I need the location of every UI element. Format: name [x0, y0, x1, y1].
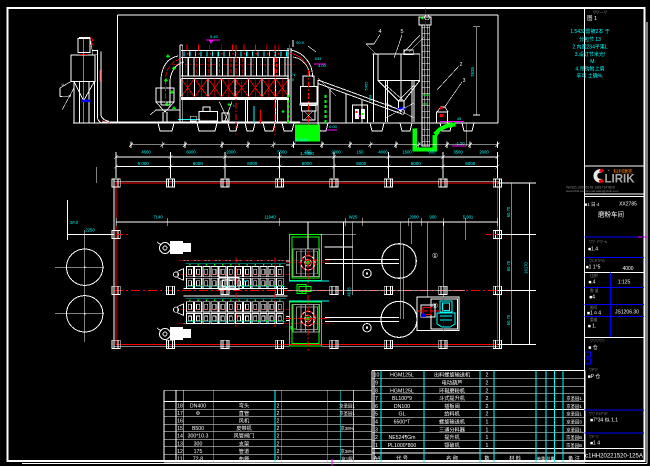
svg-text:BL100*9: BL100*9 — [392, 396, 412, 402]
svg-text:5: 5 — [375, 412, 378, 418]
svg-text:5.901: 5.901 — [463, 215, 474, 220]
svg-text:2: 2 — [277, 434, 280, 440]
svg-text:9: 9 — [375, 381, 378, 387]
svg-text:633: 633 — [315, 56, 322, 61]
svg-text:3500: 3500 — [453, 150, 463, 155]
svg-text:1:125: 1:125 — [618, 280, 631, 286]
svg-text:▽P▽: ▽P▽ — [589, 368, 598, 372]
svg-text:4: 4 — [378, 29, 381, 35]
svg-text:900: 900 — [430, 215, 438, 220]
svg-text:17: 17 — [177, 411, 183, 417]
svg-text:皮带机: 皮带机 — [236, 424, 252, 432]
svg-text:7635: 7635 — [470, 66, 475, 77]
svg-text:HGM125L: HGM125L — [390, 373, 414, 379]
svg-text:Φ: Φ — [196, 411, 200, 417]
svg-text:▽▽· P▽~b: ▽▽· P▽~b — [589, 240, 607, 244]
svg-text:2000: 2000 — [409, 215, 419, 220]
svg-text:♣: ♣ — [172, 66, 176, 72]
svg-text:京圣园B: 京圣园B — [566, 434, 582, 441]
svg-text:6000: 6000 — [465, 161, 476, 166]
svg-text:12: 12 — [177, 449, 183, 455]
svg-text:3: 3 — [463, 78, 466, 84]
svg-text:72-8: 72-8 — [193, 456, 203, 462]
svg-text:5: 5 — [400, 29, 403, 35]
svg-text:代 号: 代 号 — [396, 454, 408, 462]
svg-text:1500: 1500 — [402, 150, 412, 155]
svg-text:900: 900 — [429, 150, 437, 155]
svg-text:5.40: 5.40 — [210, 34, 219, 39]
svg-text:1: 1 — [486, 443, 489, 449]
svg-text:1.7400: 1.7400 — [296, 138, 309, 143]
svg-text:♣: ♣ — [170, 90, 174, 96]
svg-text:图 1: 图 1 — [587, 14, 597, 22]
svg-text:16: 16 — [177, 419, 183, 425]
svg-text:2: 2 — [277, 411, 280, 417]
svg-text:京38%: 京38% — [340, 425, 353, 432]
svg-text:608: 608 — [367, 94, 372, 101]
svg-text:■.4: ■.4 — [588, 280, 595, 286]
svg-text:螺旋输送机: 螺旋输送机 — [439, 418, 466, 426]
svg-text:科利瑞克: 科利瑞克 — [613, 168, 632, 175]
svg-text:5455: 5455 — [364, 81, 369, 91]
svg-text:10: 10 — [374, 373, 380, 379]
svg-text:京38%: 京38% — [340, 448, 353, 455]
svg-text:∨: ∨ — [292, 77, 295, 82]
svg-text:60.70: 60.70 — [506, 260, 511, 271]
svg-text:京圣园3: 京圣园3 — [566, 419, 582, 426]
svg-text:材 料: 材 料 — [509, 454, 521, 462]
svg-text:弯头: 弯头 — [239, 402, 249, 410]
svg-text:♣: ♣ — [172, 106, 176, 112]
svg-text:6000: 6000 — [193, 161, 204, 166]
svg-text:B500: B500 — [192, 426, 204, 432]
svg-text:2: 2 — [277, 419, 280, 425]
svg-text:颚破机: 颚破机 — [444, 441, 460, 449]
svg-text:NE524¶Gm: NE524¶Gm — [388, 435, 415, 441]
svg-text:6: 6 — [375, 404, 378, 410]
svg-text:2250: 2250 — [85, 228, 95, 233]
svg-text:6000: 6000 — [186, 150, 196, 155]
svg-text:▽▽ P1P7P: ▽▽ P1P7P — [589, 412, 608, 416]
svg-text:6000: 6000 — [302, 161, 313, 166]
svg-text:▽P ▽: ▽P ▽ — [589, 435, 599, 439]
svg-text:京圣园1: 京圣园1 — [566, 395, 582, 402]
svg-text:18: 18 — [177, 404, 183, 410]
svg-text:300*10.3: 300*10.3 — [188, 434, 209, 440]
svg-text:15: 15 — [177, 426, 183, 432]
svg-text:DN400: DN400 — [190, 404, 206, 410]
svg-text:♣: ♣ — [164, 78, 168, 84]
svg-text:4000: 4000 — [378, 150, 388, 155]
svg-text:风管阀门: 风管阀门 — [234, 432, 255, 440]
svg-text:2000: 2000 — [479, 150, 489, 155]
svg-text:2: 2 — [486, 381, 489, 387]
svg-text:■P 仓: ■P 仓 — [588, 373, 601, 380]
svg-text:2F.0: 2F.0 — [70, 220, 79, 225]
svg-text:京圣园1: 京圣园1 — [566, 403, 582, 410]
svg-text:300: 300 — [194, 441, 203, 447]
svg-text:辛可 土确%.: 辛可 土确%. — [576, 73, 603, 80]
svg-text:2: 2 — [486, 396, 489, 402]
svg-text:■1 1°5: ■1 1°5 — [586, 265, 601, 271]
svg-text:插板阀: 插板阀 — [444, 402, 460, 410]
svg-text:3: 3 — [375, 427, 378, 433]
svg-text:2: 2 — [486, 412, 489, 418]
svg-text:■1 ¤ 4: ■1 ¤ 4 — [587, 311, 601, 317]
svg-text:2: 2 — [486, 388, 489, 394]
svg-text:4615: 4615 — [347, 287, 352, 297]
svg-text:京圣园1: 京圣园1 — [339, 403, 355, 410]
svg-text:6500*T: 6500*T — [394, 420, 412, 426]
svg-text:京圣园B: 京圣园B — [566, 442, 582, 449]
svg-text:2: 2 — [277, 449, 280, 455]
svg-text:京圣园1: 京圣园1 — [566, 411, 582, 418]
svg-text:▽▽▽▽▽: ▽▽▽▽▽ — [590, 339, 606, 343]
svg-text:W25: W25 — [349, 215, 358, 220]
svg-text:14: 14 — [177, 434, 183, 440]
svg-text:11: 11 — [177, 456, 182, 462]
svg-text:2: 2 — [375, 435, 378, 441]
svg-text:■ 1.: ■ 1. — [588, 324, 597, 330]
svg-text:DN100: DN100 — [394, 404, 410, 410]
svg-text:重量: 重量 — [590, 317, 598, 322]
svg-text:GL: GL — [399, 412, 406, 418]
svg-text:2: 2 — [277, 404, 280, 410]
svg-text:4600: 4600 — [141, 150, 151, 155]
svg-text:8: 8 — [375, 388, 378, 394]
svg-text:■7°34 似 1.1: ■7°34 似 1.1 — [590, 418, 618, 424]
svg-text:2: 2 — [277, 426, 280, 432]
svg-text:60.70: 60.70 — [506, 206, 511, 217]
svg-text:1: 1 — [486, 420, 489, 426]
svg-text:名 称: 名 称 — [446, 454, 458, 462]
svg-text:数: 数 — [484, 454, 490, 462]
svg-text:♣: ♣ — [165, 102, 169, 108]
svg-text:出料螺旋输送机: 出料螺旋输送机 — [434, 371, 471, 379]
svg-text:2.内宽234平果L: 2.内宽234平果L — [572, 44, 608, 51]
svg-text:2000: 2000 — [331, 150, 341, 155]
svg-text:4: 4 — [375, 420, 378, 426]
svg-text:给料机: 给料机 — [444, 410, 460, 418]
svg-text:提升机: 提升机 — [444, 433, 460, 441]
svg-text:♣: ♣ — [166, 54, 170, 60]
svg-text:6000: 6000 — [411, 161, 422, 166]
svg-text:管道: 管道 — [239, 447, 249, 455]
svg-text:JS1206.30: JS1206.30 — [615, 310, 639, 316]
svg-text:■1 4: ■1 4 — [590, 441, 600, 447]
svg-text:磨粉车间: 磨粉车间 — [598, 210, 624, 219]
svg-text:①: ① — [432, 252, 438, 260]
svg-text:90.9: 90.9 — [296, 40, 305, 45]
svg-text:45: 45 — [457, 116, 462, 121]
svg-text:6000: 6000 — [247, 161, 258, 166]
svg-text:电动葫芦: 电动葫芦 — [442, 379, 463, 387]
svg-text:13: 13 — [177, 441, 183, 447]
svg-text:图号: 图号 — [590, 305, 598, 310]
svg-text:▲: ▲ — [300, 290, 304, 295]
svg-text:1: 1 — [486, 435, 489, 441]
svg-text:单重: 单重 — [537, 455, 545, 462]
svg-text:■4: ■4 — [589, 295, 595, 301]
svg-text:2: 2 — [460, 62, 463, 68]
svg-text:1.5432雷被2本 于: 1.5432雷被2本 于 — [570, 28, 609, 35]
svg-text:支架: 支架 — [239, 439, 249, 447]
svg-text:京1服: 京1服 — [341, 455, 353, 462]
svg-text:XX2785: XX2785 — [619, 202, 637, 208]
svg-text:6:000: 6:000 — [138, 161, 150, 166]
svg-text:1.7400: 1.7400 — [300, 151, 314, 156]
svg-text:0.00: 0.00 — [329, 124, 338, 129]
svg-text:▽CP7PG: ▽CP7PG — [589, 259, 605, 263]
svg-text:三通分料器: 三通分料器 — [439, 425, 466, 433]
svg-text:2: 2 — [486, 373, 489, 379]
svg-text:■ 仓: ■ 仓 — [588, 344, 597, 351]
svg-text:1: 1 — [486, 427, 489, 433]
svg-text:布袋: 布袋 — [239, 454, 249, 462]
svg-text:总重: 总重 — [546, 455, 554, 461]
svg-text:2: 2 — [486, 404, 489, 410]
svg-text:HGM125L: HGM125L — [390, 388, 414, 394]
svg-text:▽▽~~▽: ▽▽~~▽ — [593, 10, 608, 15]
svg-text:数 量: 数 量 — [590, 288, 599, 293]
svg-text:■1.4: ■1.4 — [588, 247, 598, 253]
svg-text:60.70: 60.70 — [506, 314, 511, 325]
svg-text:1: 1 — [375, 443, 378, 449]
svg-text:斗式提升机: 斗式提升机 — [439, 394, 466, 402]
svg-text:4.吊钩附上肩: 4.吊钩附上肩 — [575, 66, 604, 73]
svg-text:www.clirik.com E-mail:sales@c: www.clirik.com E-mail:sales@clirik.com — [566, 189, 619, 193]
svg-text:直管: 直管 — [239, 409, 249, 417]
svg-text:U: U — [62, 82, 65, 87]
svg-text:175: 175 — [194, 449, 203, 455]
svg-text:备 注: 备 注 — [568, 454, 580, 462]
svg-text:分包节 13: 分包节 13 — [579, 36, 601, 43]
svg-text:比例: 比例 — [590, 273, 598, 278]
svg-text:11940: 11940 — [264, 215, 276, 220]
svg-text:150: 150 — [357, 150, 365, 155]
svg-text:京圣园1: 京圣园1 — [566, 426, 582, 433]
svg-text:7: 7 — [375, 396, 378, 402]
svg-text:3.设订节米光!: 3.设订节米光! — [575, 51, 606, 58]
svg-text:A4: A4 — [374, 456, 380, 462]
svg-text:2000: 2000 — [226, 150, 236, 155]
svg-text:京圣园1: 京圣园1 — [339, 410, 355, 417]
svg-text:M:: M: — [590, 59, 596, 65]
svg-text:4000: 4000 — [622, 266, 633, 272]
svg-text:2: 2 — [277, 456, 280, 462]
svg-text:7140: 7140 — [153, 215, 163, 220]
svg-text:PL1000*800: PL1000*800 — [388, 443, 417, 449]
svg-text:5500: 5500 — [277, 150, 287, 155]
svg-text:LIRIK: LIRIK — [604, 173, 635, 185]
svg-text:2: 2 — [277, 441, 280, 447]
svg-text:16170: 16170 — [524, 262, 529, 274]
svg-text:风机: 风机 — [239, 417, 250, 425]
svg-text:环辊磨粉机: 环辊磨粉机 — [439, 386, 466, 394]
svg-text:6000: 6000 — [356, 161, 367, 166]
svg-text:c1HH20221520-125A: c1HH20221520-125A — [585, 454, 643, 460]
